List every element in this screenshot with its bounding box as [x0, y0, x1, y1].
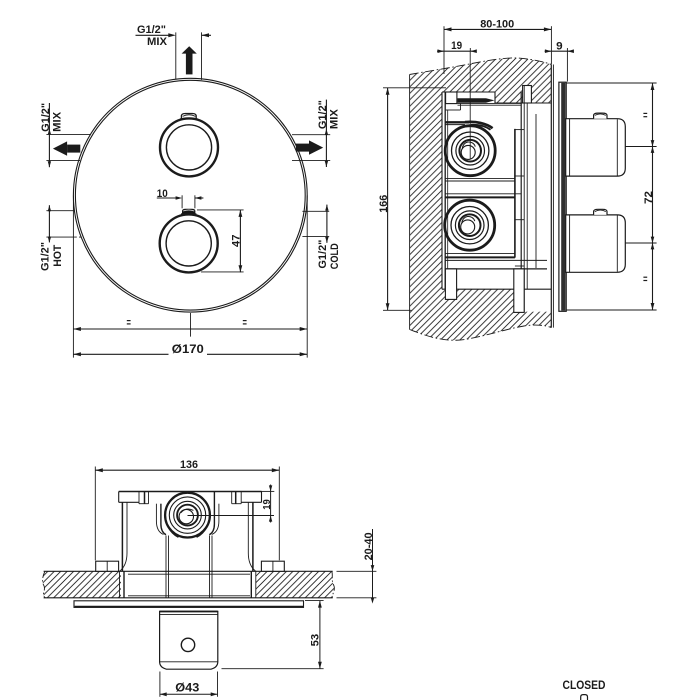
svg-text:HOT: HOT: [52, 244, 64, 266]
svg-text:COLD: COLD: [329, 243, 341, 269]
svg-text:72: 72: [643, 191, 655, 204]
svg-text:136: 136: [180, 459, 198, 471]
svg-text:MIX: MIX: [147, 36, 168, 48]
svg-text:Ø43: Ø43: [175, 681, 199, 695]
svg-text:166: 166: [378, 195, 390, 213]
svg-text:G1/2": G1/2": [317, 100, 329, 129]
svg-text:G1/2": G1/2": [40, 103, 52, 132]
svg-text:CLOSED: CLOSED: [563, 680, 606, 692]
svg-text:MIX: MIX: [52, 111, 64, 132]
svg-text:Ø170: Ø170: [172, 342, 204, 356]
svg-text:G1/2": G1/2": [39, 242, 51, 271]
svg-text:19: 19: [262, 499, 273, 510]
svg-text:19: 19: [451, 40, 462, 52]
svg-text:G1/2": G1/2": [317, 240, 329, 269]
svg-text:G1/2": G1/2": [137, 24, 166, 36]
svg-text:MIX: MIX: [329, 108, 341, 129]
svg-text:80-100: 80-100: [480, 18, 514, 30]
svg-text:9: 9: [556, 40, 563, 52]
